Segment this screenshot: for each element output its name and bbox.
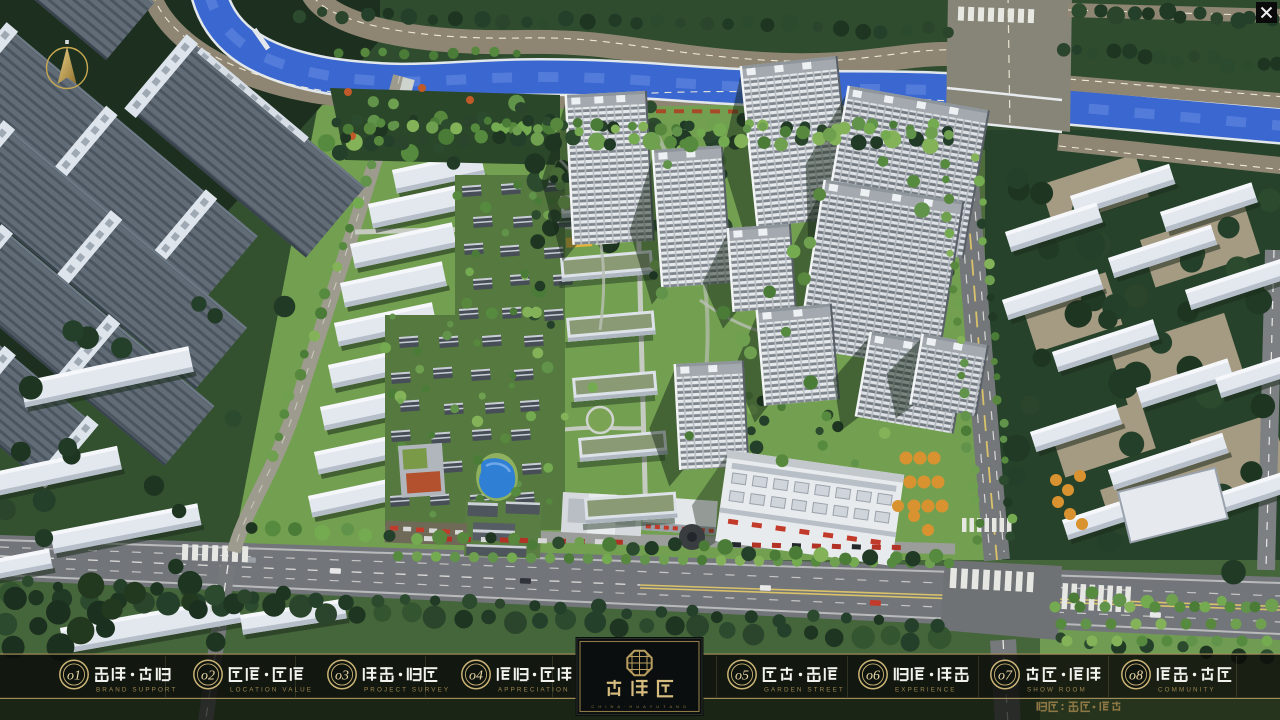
svg-text:C H I N A · H U A Y U T A N G: C H I N A · H U A Y U T A N G (591, 704, 687, 709)
svg-text:BRAND SUPPORT: BRAND SUPPORT (96, 687, 177, 694)
svg-text:o7: o7 (998, 669, 1013, 684)
svg-text:COMMUNITY: COMMUNITY (1158, 687, 1216, 694)
svg-text:o8: o8 (1129, 669, 1143, 684)
svg-text:o5: o5 (735, 669, 749, 684)
svg-text:GARDEN STREET: GARDEN STREET (764, 687, 845, 694)
svg-text:o3: o3 (335, 669, 349, 684)
svg-text:PROJECT SURVEY: PROJECT SURVEY (364, 687, 450, 694)
svg-text:LOCATION VALUE: LOCATION VALUE (230, 687, 313, 694)
svg-text:SHOW ROOM: SHOW ROOM (1027, 687, 1087, 694)
svg-text:o2: o2 (201, 669, 215, 684)
svg-text:o4: o4 (469, 669, 483, 684)
svg-text:APPRECIATION: APPRECIATION (498, 687, 570, 694)
svg-text:EXPERIENCE: EXPERIENCE (895, 687, 957, 694)
svg-text:o6: o6 (866, 669, 880, 684)
svg-text:o1: o1 (67, 669, 81, 684)
